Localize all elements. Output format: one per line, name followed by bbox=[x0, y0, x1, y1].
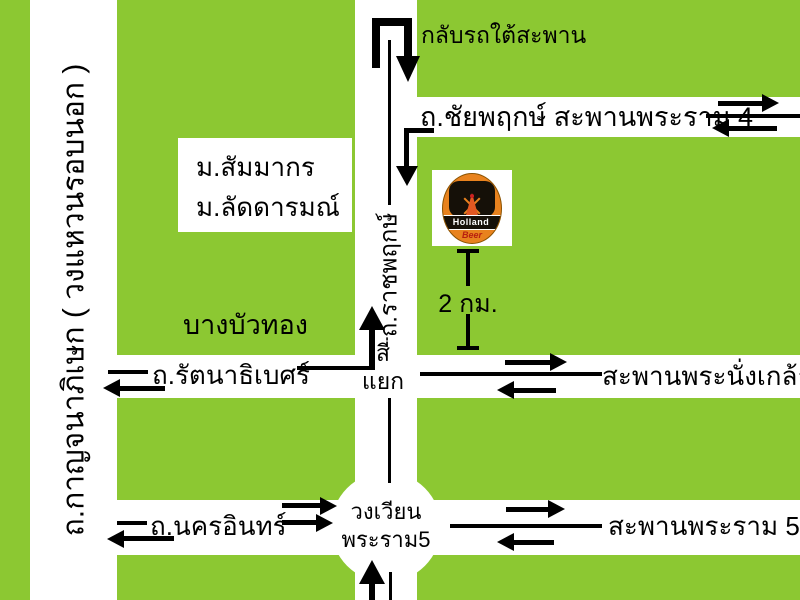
arrow-left-head-icon bbox=[107, 530, 124, 548]
arrow-left-head-icon bbox=[497, 381, 514, 399]
holland-beer-badge-icon: Holland Beer bbox=[442, 173, 502, 244]
arrow-left bbox=[120, 386, 165, 391]
logo-text-holland: Holland bbox=[442, 215, 502, 230]
road-label-outer-ring: ถ.กาญจนาภิเษก ( วงแหวนรอบนอก ) bbox=[51, 64, 98, 537]
road-label-nakhon-in: ถ.นครอินทร์ bbox=[150, 502, 287, 552]
arrow-right bbox=[718, 101, 762, 106]
road-line bbox=[108, 370, 148, 374]
road-label-rama5: สะพานพระราม 5 bbox=[608, 502, 800, 552]
road-label-chaiyaphruek-rama4: ถ.ชัยพฤกษ์ สะพานพระราม 4 bbox=[420, 97, 753, 137]
roundabout-label: วงเวียน bbox=[331, 499, 441, 525]
landmark-village-1: ม.สัมมากร bbox=[196, 147, 315, 188]
arrow-left bbox=[729, 126, 777, 131]
roundabout-label: พระราม5 bbox=[331, 527, 441, 553]
arrow-right-head-icon bbox=[548, 500, 565, 518]
arrow-right bbox=[505, 360, 550, 365]
u-turn-icon bbox=[404, 18, 412, 58]
u-turn-arrowhead-icon bbox=[396, 56, 420, 82]
arrow-left-head-icon bbox=[103, 379, 120, 397]
arrow-right bbox=[282, 503, 320, 508]
road-line bbox=[420, 372, 602, 376]
u-turn-note: กลับรถใต้สะพาน bbox=[421, 18, 586, 54]
windmill-panel bbox=[449, 181, 495, 217]
turn-down-arrow bbox=[404, 128, 409, 170]
arrow-up bbox=[369, 582, 375, 600]
arrow-left bbox=[514, 388, 556, 393]
turn-up-arrow bbox=[369, 330, 375, 370]
arrow-right-head-icon bbox=[762, 94, 779, 112]
arrow-left-head-icon bbox=[497, 533, 514, 551]
arrow-left bbox=[124, 536, 174, 541]
logo-text-beer: Beer bbox=[443, 230, 501, 240]
turn-up-arrowhead-icon bbox=[359, 306, 385, 330]
road-line bbox=[706, 114, 800, 118]
arrow-left bbox=[514, 540, 554, 545]
map-canvas: ถ.กาญจนาภิเษก ( วงแหวนรอบนอก ) ถ.ราชพฤกษ… bbox=[0, 0, 800, 600]
arrow-left-head-icon bbox=[712, 119, 729, 137]
place-label-bang-bua-thong: บางบัวทอง bbox=[183, 303, 308, 346]
centre-line bbox=[388, 398, 391, 483]
distance-marker bbox=[457, 346, 479, 350]
distance-label: 2 กม. bbox=[430, 284, 506, 324]
road-label-phra-nangklao: สะพานพระนั่งเกล้า bbox=[602, 355, 800, 398]
arrow-up-head-icon bbox=[359, 560, 385, 584]
arrow-right bbox=[506, 507, 548, 512]
windmill-hub-icon bbox=[470, 194, 474, 198]
arrow-right bbox=[282, 520, 316, 525]
landmark-village-2: ม.ลัดดารมณ์ bbox=[196, 187, 340, 228]
turn-up-arrow bbox=[297, 366, 375, 370]
centre-line bbox=[389, 572, 392, 600]
road-line bbox=[450, 524, 602, 528]
intersection-label: แยก bbox=[357, 368, 409, 394]
distance-marker bbox=[466, 249, 470, 286]
centre-line bbox=[388, 40, 391, 205]
road-label-rattanathibet: ถ.รัตนาธิเบศร์ bbox=[152, 355, 310, 398]
turn-down-arrowhead-icon bbox=[396, 166, 418, 186]
arrow-right-head-icon bbox=[550, 353, 567, 371]
intersection-label: สี่ bbox=[357, 340, 409, 366]
road-line bbox=[117, 521, 147, 525]
holland-beer-logo: Holland Beer bbox=[432, 170, 512, 246]
